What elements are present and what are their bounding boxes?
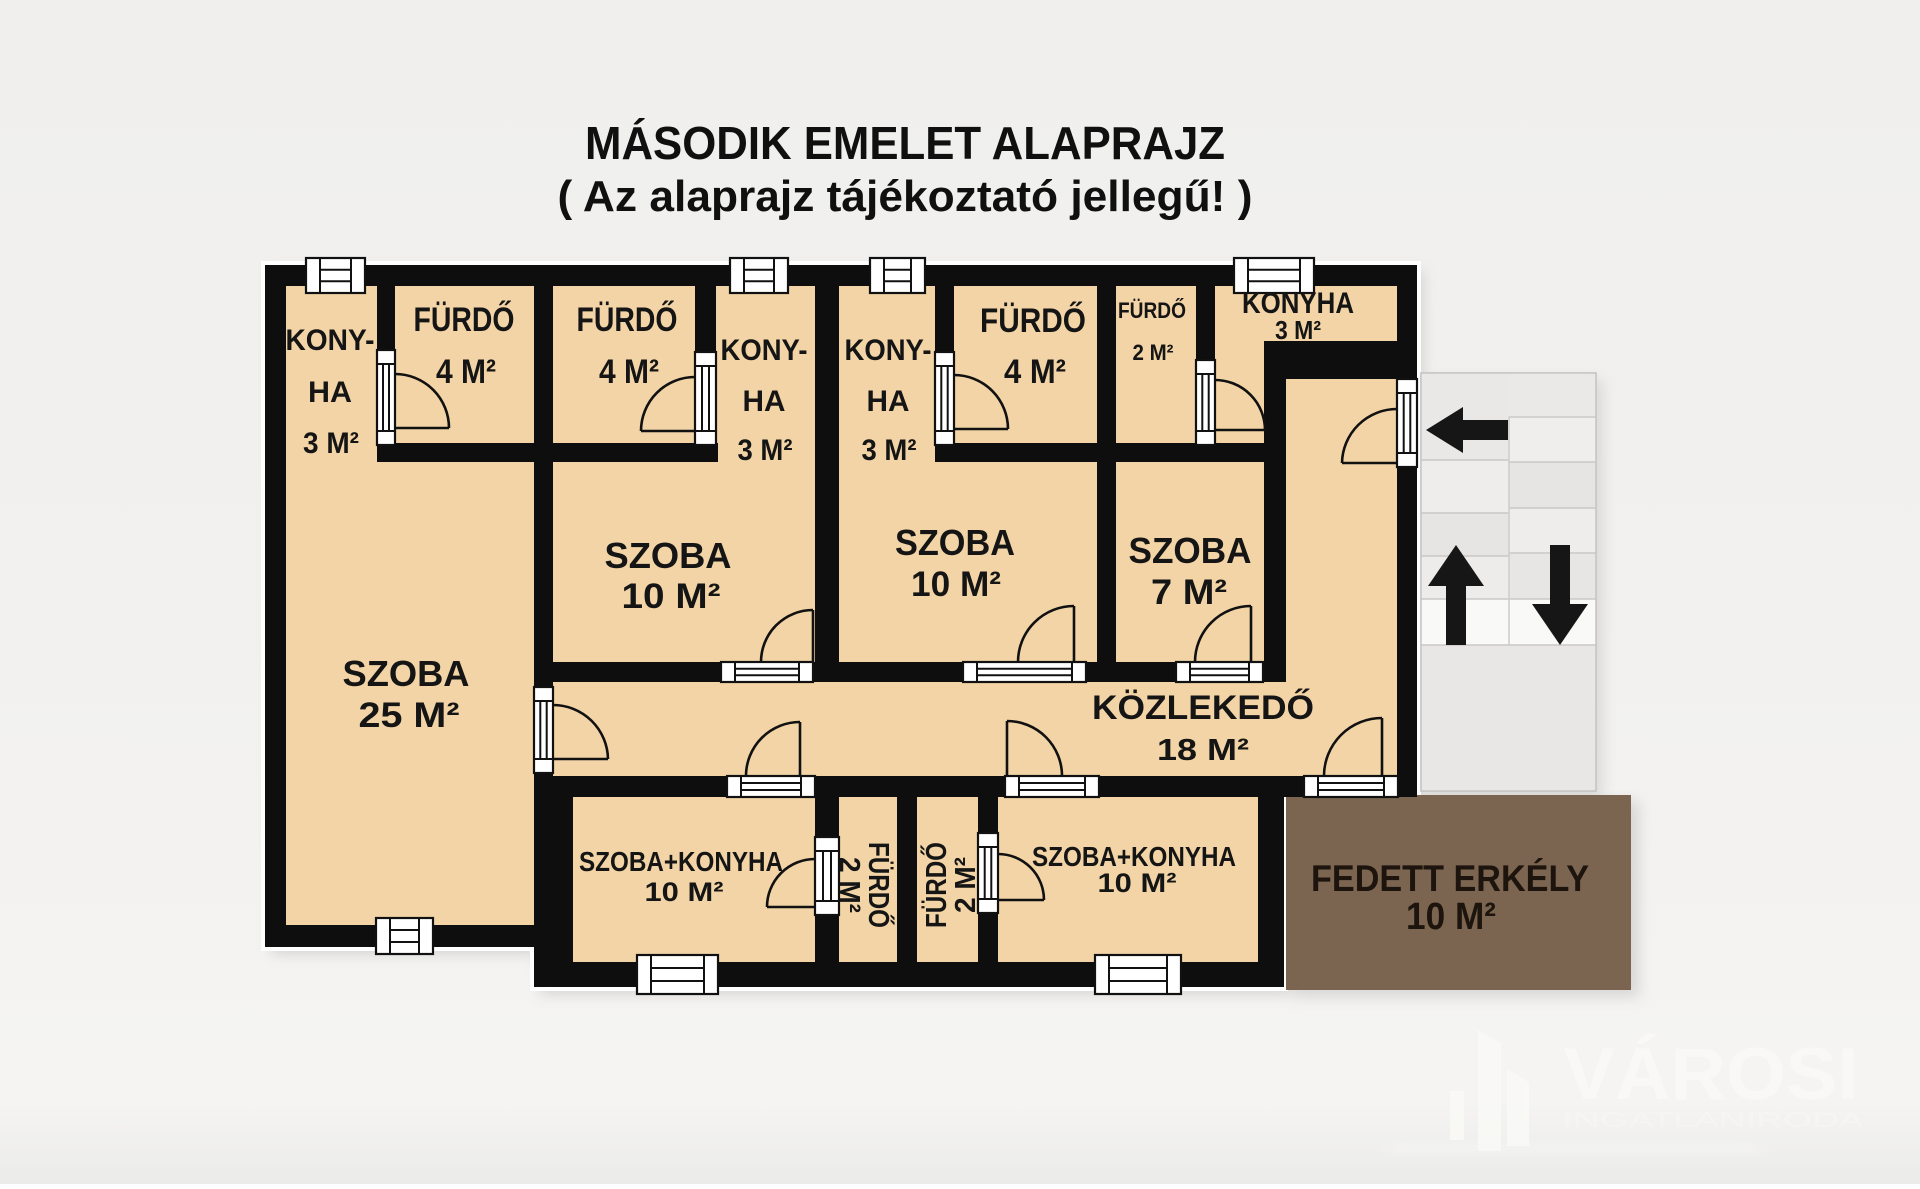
svg-text:4 M²: 4 M² <box>1004 353 1066 391</box>
svg-text:10 M²: 10 M² <box>645 877 724 907</box>
svg-text:10 M²: 10 M² <box>1406 896 1496 938</box>
svg-text:SZOBA: SZOBA <box>1129 530 1252 571</box>
svg-text:10 M²: 10 M² <box>911 565 1001 604</box>
svg-text:FEDETT ERKÉLY: FEDETT ERKÉLY <box>1311 858 1589 899</box>
svg-text:KONY-: KONY- <box>286 324 375 357</box>
svg-text:25 M²: 25 M² <box>359 696 460 735</box>
svg-text:INGATLANIRODA: INGATLANIRODA <box>1563 1109 1864 1132</box>
svg-text:FÜRDŐ: FÜRDŐ <box>919 842 953 928</box>
svg-text:MÁSODIK EMELET ALAPRAJZ: MÁSODIK EMELET ALAPRAJZ <box>585 117 1225 169</box>
svg-text:SZOBA: SZOBA <box>605 535 732 576</box>
svg-text:FÜRDŐ: FÜRDŐ <box>1118 298 1186 323</box>
svg-text:3 M²: 3 M² <box>303 427 359 460</box>
svg-text:SZOBA+KONYHA: SZOBA+KONYHA <box>579 846 783 877</box>
svg-text:3 M²: 3 M² <box>862 434 917 467</box>
svg-text:2 M²: 2 M² <box>950 857 982 913</box>
svg-text:2 M²: 2 M² <box>1133 340 1174 365</box>
svg-text:HA: HA <box>743 385 786 418</box>
svg-text:10 M²: 10 M² <box>1098 868 1177 898</box>
svg-text:18 M²: 18 M² <box>1157 732 1249 767</box>
svg-text:FÜRDŐ: FÜRDŐ <box>980 302 1086 340</box>
svg-text:4 M²: 4 M² <box>436 353 496 391</box>
svg-text:SZOBA: SZOBA <box>895 522 1015 563</box>
svg-text:3 M²: 3 M² <box>738 434 793 467</box>
svg-text:FÜRDŐ: FÜRDŐ <box>414 301 515 339</box>
svg-text:3 M²: 3 M² <box>1275 315 1321 345</box>
svg-text:7 M²: 7 M² <box>1151 573 1227 612</box>
svg-text:HA: HA <box>308 376 352 409</box>
svg-text:VÁROSI: VÁROSI <box>1564 1034 1859 1115</box>
svg-text:KONY-: KONY- <box>721 334 808 367</box>
svg-text:FÜRDŐ: FÜRDŐ <box>862 842 896 928</box>
svg-text:SZOBA: SZOBA <box>343 653 470 694</box>
svg-text:4 M²: 4 M² <box>599 353 659 391</box>
svg-text:2 M²: 2 M² <box>833 857 865 913</box>
svg-text:KONY-: KONY- <box>845 334 932 367</box>
svg-text:( Az alaprajz tájékoztató jell: ( Az alaprajz tájékoztató jellegű! ) <box>558 172 1253 221</box>
svg-text:10 M²: 10 M² <box>622 577 721 616</box>
svg-text:FÜRDŐ: FÜRDŐ <box>577 301 678 339</box>
svg-text:HA: HA <box>867 385 910 418</box>
svg-text:KÖZLEKEDŐ: KÖZLEKEDŐ <box>1092 689 1314 727</box>
